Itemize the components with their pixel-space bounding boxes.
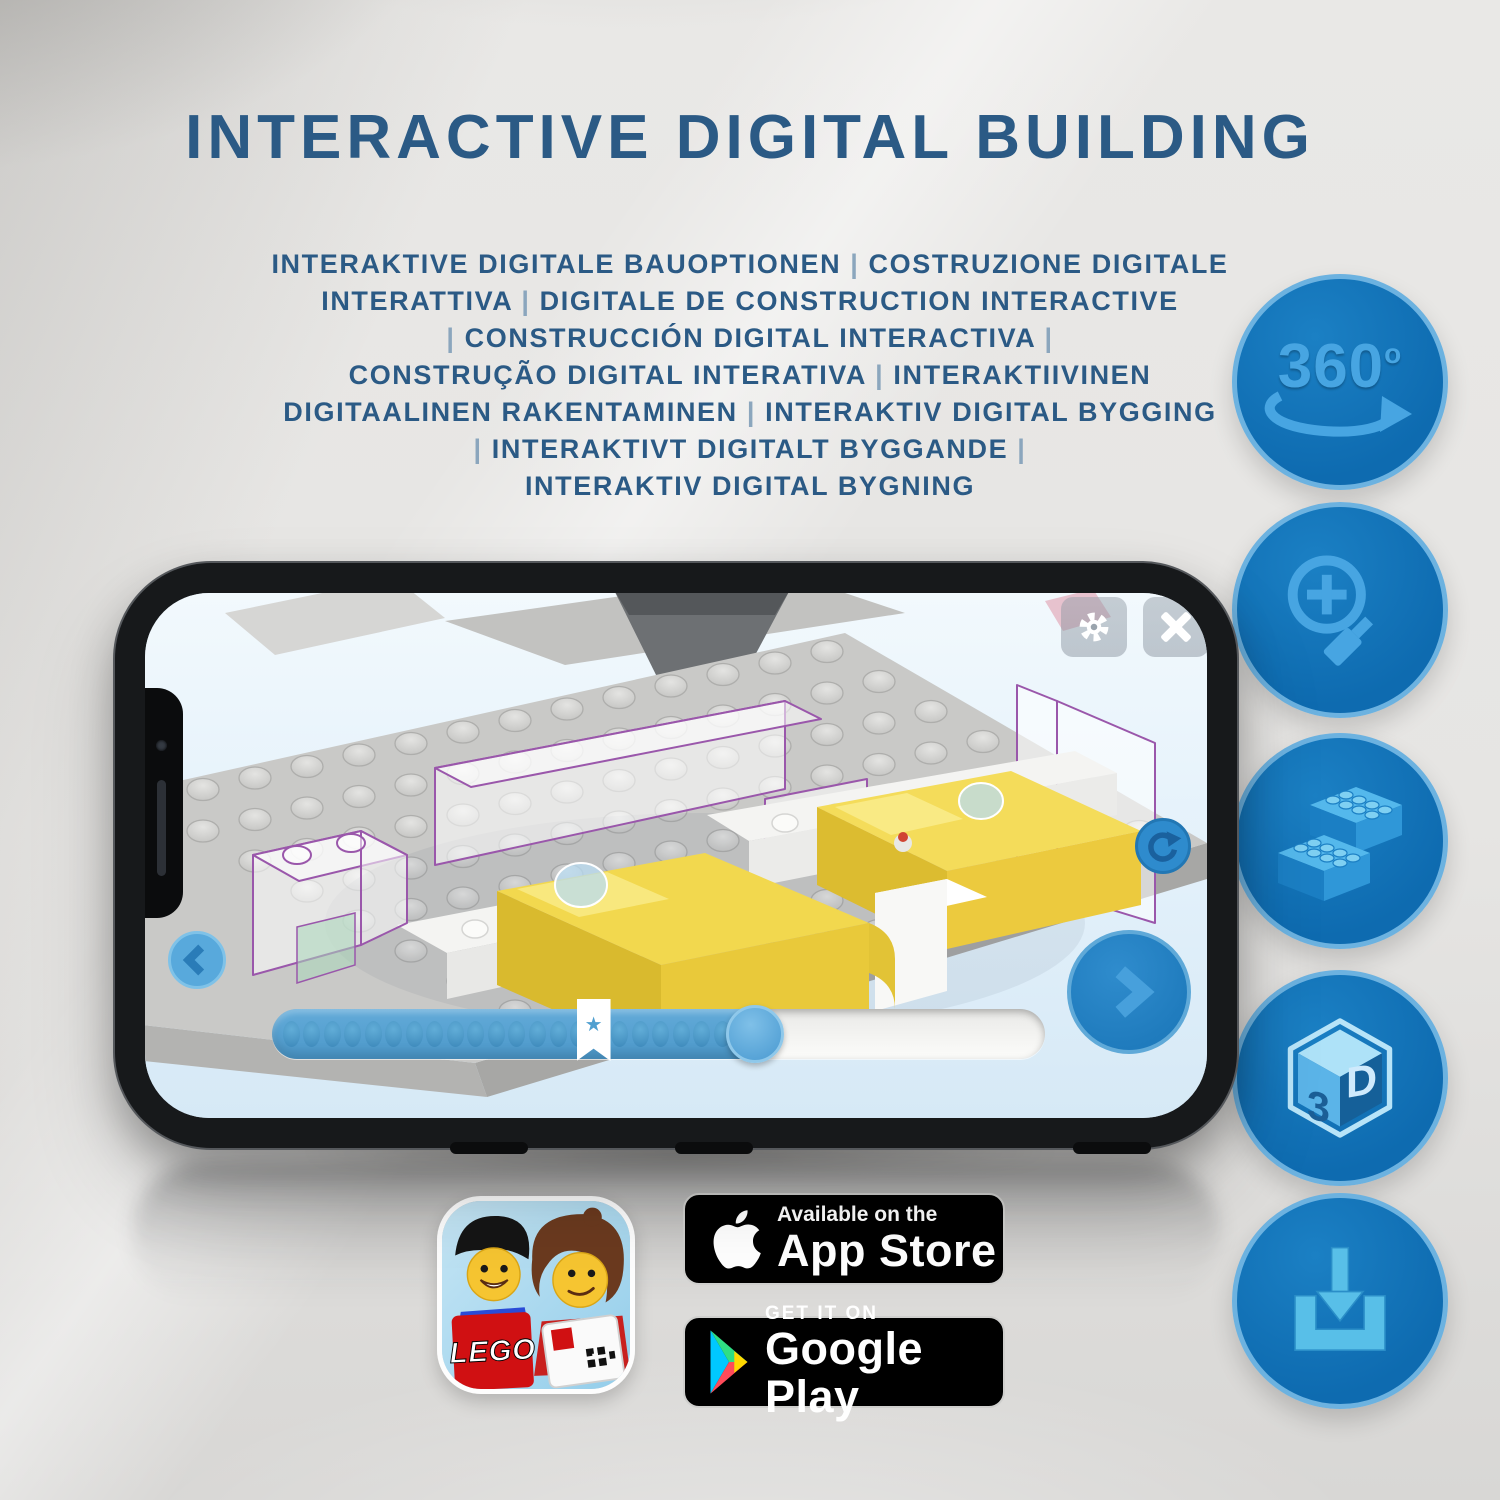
feature-badge-zoom[interactable]	[1232, 502, 1448, 718]
pipe-separator: |	[747, 397, 756, 427]
progress-dot	[303, 1021, 320, 1047]
rotate-model-button[interactable]	[1135, 818, 1191, 874]
progress-dot	[426, 1021, 443, 1047]
chevron-right-icon	[1084, 947, 1174, 1037]
progress-dot	[344, 1021, 361, 1047]
multilingual-subtitle: INTERAKTIVE DIGITALE BAUOPTIONEN | COSTR…	[220, 246, 1280, 505]
chevron-left-icon	[177, 940, 217, 980]
phone-reflection	[132, 1162, 1220, 1302]
close-x-icon	[1154, 605, 1198, 649]
subtitle-line: INTERAKTIVE DIGITALE BAUOPTIONEN | COSTR…	[220, 246, 1280, 283]
progress-dot	[652, 1021, 669, 1047]
phone-power-button	[1073, 1142, 1151, 1154]
progress-dot	[632, 1021, 649, 1047]
progress-dot	[529, 1021, 546, 1047]
phone-side-button	[675, 1142, 753, 1154]
360-rotation-arrow-icon	[1260, 390, 1420, 440]
subtitle-line: | CONSTRUCCIÓN DIGITAL INTERACTIVA |	[220, 320, 1280, 357]
apple-logo-icon	[707, 1206, 763, 1272]
next-step-button[interactable]	[1067, 930, 1191, 1054]
pipe-separator: |	[474, 434, 483, 464]
earpiece-speaker	[157, 780, 166, 876]
pipe-separator: |	[446, 323, 455, 353]
progress-dot	[673, 1021, 690, 1047]
progress-dot	[693, 1021, 710, 1047]
lego-builder-app-icon: LEGO	[442, 1201, 630, 1389]
page-title: INTERACTIVE DIGITAL BUILDING	[0, 102, 1500, 173]
gear-icon	[1071, 604, 1117, 650]
progress-dot	[324, 1021, 341, 1047]
3d-cube-icon: 3 D	[1270, 1008, 1410, 1148]
progress-dot	[283, 1021, 300, 1047]
progress-dot	[385, 1021, 402, 1047]
app-store-name: App Store	[777, 1227, 997, 1275]
progress-dot	[508, 1021, 525, 1047]
star-icon: ★	[585, 1012, 603, 1037]
svg-text:D: D	[1346, 1055, 1377, 1108]
lego-app-icon[interactable]: LEGO	[437, 1196, 635, 1394]
pipe-separator: |	[850, 249, 859, 279]
download-tray-icon	[1272, 1233, 1408, 1369]
google-play-badge[interactable]: GET IT ON Google Play	[683, 1316, 1005, 1408]
previous-step-button[interactable]	[168, 931, 226, 989]
settings-button[interactable]	[1061, 597, 1127, 657]
progress-dot	[447, 1021, 464, 1047]
progress-fill	[272, 1009, 755, 1059]
pipe-separator: |	[1017, 434, 1026, 464]
feature-badge-3d[interactable]: 3 D	[1232, 970, 1448, 1186]
subtitle-line: DIGITAALINEN RAKENTAMINEN | INTERAKTIV D…	[220, 394, 1280, 431]
feature-badge-download[interactable]	[1232, 1193, 1448, 1409]
close-button[interactable]	[1143, 597, 1207, 657]
subtitle-line: INTERAKTIV DIGITAL BYGNING	[220, 468, 1280, 505]
app-store-tagline: Available on the	[777, 1203, 997, 1227]
google-play-tagline: GET IT ON	[765, 1303, 1003, 1325]
subtitle-line: CONSTRUÇÃO DIGITAL INTERATIVA | INTERAKT…	[220, 357, 1280, 394]
pipe-separator: |	[1044, 323, 1053, 353]
progress-dot	[550, 1021, 567, 1047]
lego-bricks-icon	[1272, 773, 1408, 909]
progress-dot	[406, 1021, 423, 1047]
google-play-triangle-icon	[703, 1329, 755, 1395]
phone-side-button	[450, 1142, 528, 1154]
pipe-separator: |	[875, 360, 884, 390]
pipe-separator: |	[521, 286, 530, 316]
feature-badge-360[interactable]: 360o	[1232, 274, 1448, 490]
camera-notch	[145, 688, 183, 918]
slider-knob[interactable]	[726, 1005, 784, 1063]
feature-badge-bricks[interactable]	[1232, 733, 1448, 949]
progress-dot	[488, 1021, 505, 1047]
app-store-badge[interactable]: Available on the App Store	[683, 1193, 1005, 1285]
magnifier-zoom-in-icon	[1274, 544, 1406, 676]
phone-screen: ★	[145, 593, 1207, 1118]
subtitle-line: INTERATTIVA | DIGITALE DE CONSTRUCTION I…	[220, 283, 1280, 320]
smartphone: ★	[115, 563, 1237, 1148]
subtitle-line: | INTERAKTIVT DIGITALT BYGGANDE |	[220, 431, 1280, 468]
page: INTERACTIVE DIGITAL BUILDING INTERAKTIVE…	[0, 0, 1500, 1500]
360-label: 360o	[1278, 325, 1403, 396]
rotate-refresh-icon	[1141, 824, 1185, 868]
build-progress-slider[interactable]: ★	[272, 1009, 1045, 1059]
progress-dot	[611, 1021, 628, 1047]
svg-text:3: 3	[1307, 1082, 1330, 1132]
progress-dot	[365, 1021, 382, 1047]
google-play-name: Google Play	[765, 1325, 1003, 1421]
progress-dot	[467, 1021, 484, 1047]
front-camera	[156, 740, 167, 751]
svg-text:LEGO: LEGO	[449, 1334, 537, 1370]
